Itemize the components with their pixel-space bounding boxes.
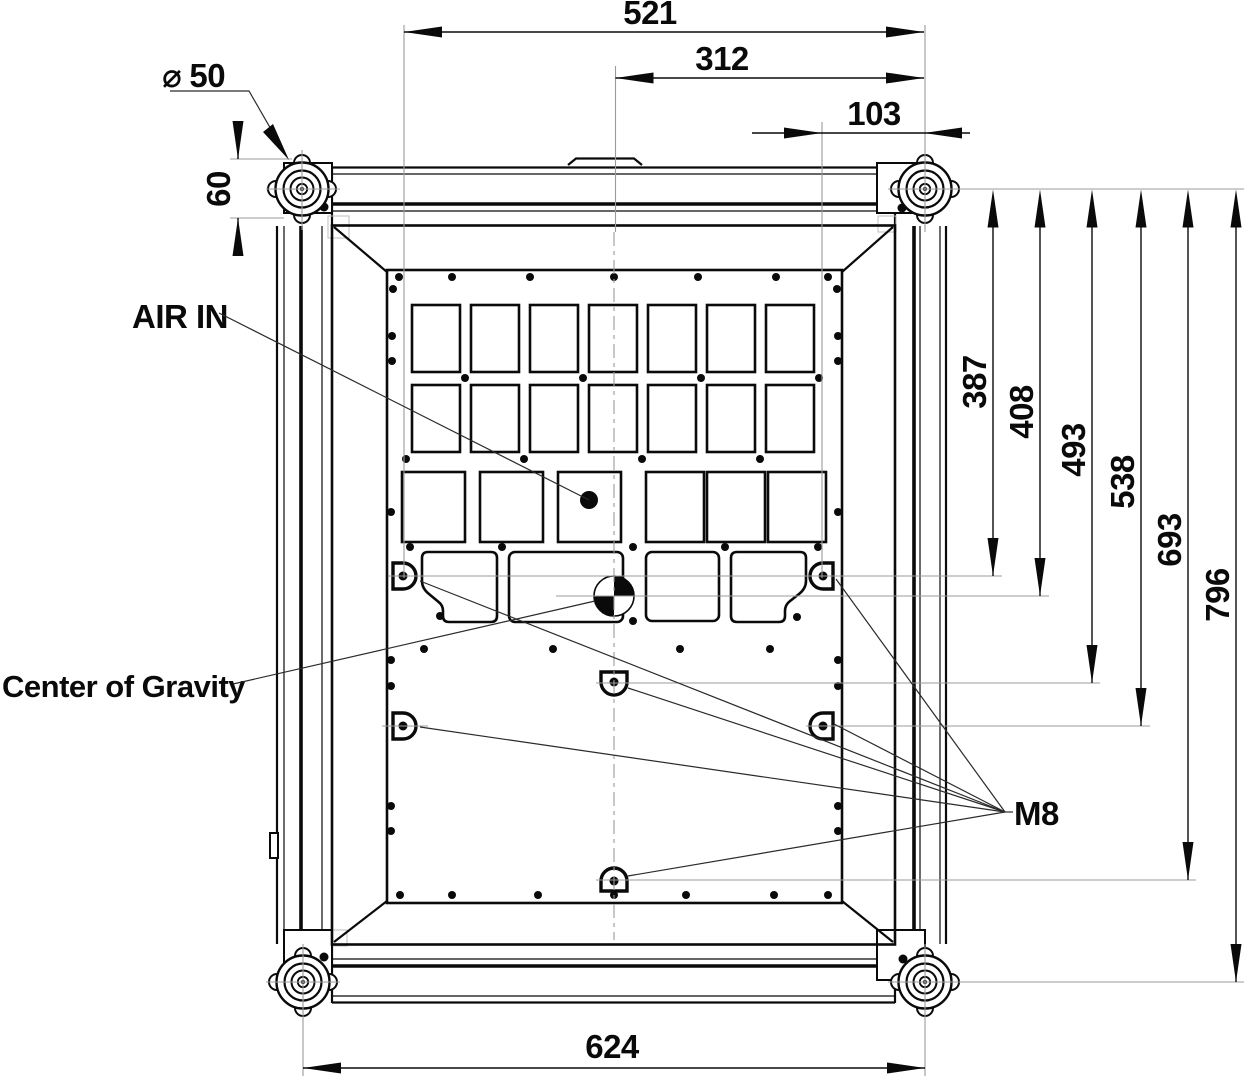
dim-label-dia50: ⌀50	[162, 57, 225, 94]
dim-label-312: 312	[695, 40, 749, 77]
dim-label-493: 493	[1055, 423, 1092, 477]
dimension-796: 796	[1199, 190, 1242, 983]
dim-label-103: 103	[847, 95, 901, 132]
callout-air-in: AIR IN	[132, 298, 589, 500]
chamfer-bottom-left	[334, 901, 387, 942]
callout-caster-diameter: ⌀50	[162, 57, 289, 160]
callout-center-of-gravity: Center of Gravity	[2, 601, 595, 704]
dimension-538: 538	[1104, 190, 1147, 727]
dim-label-624: 624	[585, 1028, 640, 1065]
dim-label-408: 408	[1003, 385, 1040, 439]
dimension-408: 408	[1003, 190, 1046, 597]
dim-label-796: 796	[1199, 568, 1236, 622]
dimension-387: 387	[956, 190, 999, 577]
flightcase-bottom-view-drawing: 521 312 103 60 ⌀50 387 408	[0, 0, 1246, 1080]
chamfer-top-left	[334, 227, 387, 272]
left-rail-tab	[270, 833, 278, 858]
dimension-521: 521	[404, 0, 924, 38]
dimension-312: 312	[616, 40, 925, 84]
dimension-493: 493	[1055, 190, 1098, 684]
dimension-693: 693	[1151, 190, 1194, 881]
dim-label-693: 693	[1151, 513, 1188, 567]
dim-label-60: 60	[200, 171, 237, 207]
air-in-label: AIR IN	[132, 298, 228, 335]
dimension-624: 624	[303, 1028, 925, 1074]
technical-drawing-page: 521 312 103 60 ⌀50 387 408	[0, 0, 1246, 1080]
dim-label-387: 387	[956, 355, 993, 409]
top-rail-tab	[568, 159, 642, 166]
chamfer-bottom-right	[842, 901, 893, 942]
dimension-103: 103	[752, 95, 970, 139]
dim-label-538: 538	[1104, 455, 1141, 509]
m8-label: M8	[1014, 795, 1059, 832]
dimension-60: 60	[200, 121, 244, 256]
callout-m8: M8	[420, 579, 1059, 876]
center-of-gravity-label: Center of Gravity	[2, 669, 246, 704]
chamfer-top-right	[842, 227, 893, 272]
dim-label-521: 521	[623, 0, 677, 31]
